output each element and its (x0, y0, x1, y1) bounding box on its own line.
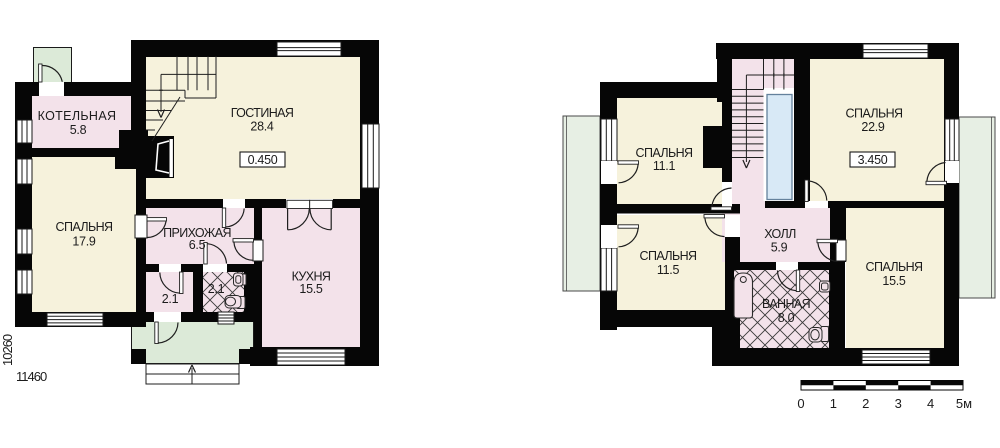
svg-text:11.1: 11.1 (653, 159, 676, 173)
svg-text:4: 4 (927, 396, 934, 411)
svg-text:8.0: 8.0 (778, 311, 795, 325)
svg-text:6.5: 6.5 (189, 238, 206, 252)
svg-text:СПАЛЬНЯ: СПАЛЬНЯ (846, 107, 903, 121)
svg-text:КОТЕЛЬНАЯ: КОТЕЛЬНАЯ (38, 109, 117, 123)
svg-text:2.1: 2.1 (162, 292, 179, 306)
svg-text:СПАЛЬНЯ: СПАЛЬНЯ (56, 220, 113, 234)
svg-text:0: 0 (797, 396, 804, 411)
svg-text:28.4: 28.4 (250, 120, 273, 134)
svg-text:11460: 11460 (16, 369, 47, 384)
svg-text:2: 2 (862, 396, 869, 411)
svg-text:15.5: 15.5 (882, 274, 905, 288)
svg-text:10260: 10260 (0, 334, 15, 366)
svg-text:22.9: 22.9 (861, 120, 884, 134)
svg-text:5м: 5м (956, 396, 972, 411)
svg-text:ГОСТИНАЯ: ГОСТИНАЯ (231, 106, 294, 120)
svg-text:ВАННАЯ: ВАННАЯ (762, 297, 811, 311)
svg-text:1: 1 (830, 396, 837, 411)
svg-text:СПАЛЬНЯ: СПАЛЬНЯ (636, 146, 693, 160)
svg-text:3.450: 3.450 (858, 153, 888, 167)
svg-text:СПАЛЬНЯ: СПАЛЬНЯ (866, 260, 923, 274)
svg-text:17.9: 17.9 (72, 235, 95, 249)
svg-text:3: 3 (895, 396, 902, 411)
svg-text:2.1: 2.1 (208, 282, 225, 296)
svg-text:ХОЛЛ: ХОЛЛ (764, 227, 796, 241)
svg-text:5.9: 5.9 (771, 241, 788, 255)
svg-text:15.5: 15.5 (299, 282, 322, 296)
svg-text:0.450: 0.450 (248, 153, 278, 167)
svg-text:5.8: 5.8 (70, 123, 87, 137)
svg-text:СПАЛЬНЯ: СПАЛЬНЯ (640, 249, 697, 263)
svg-text:11.5: 11.5 (657, 263, 680, 277)
